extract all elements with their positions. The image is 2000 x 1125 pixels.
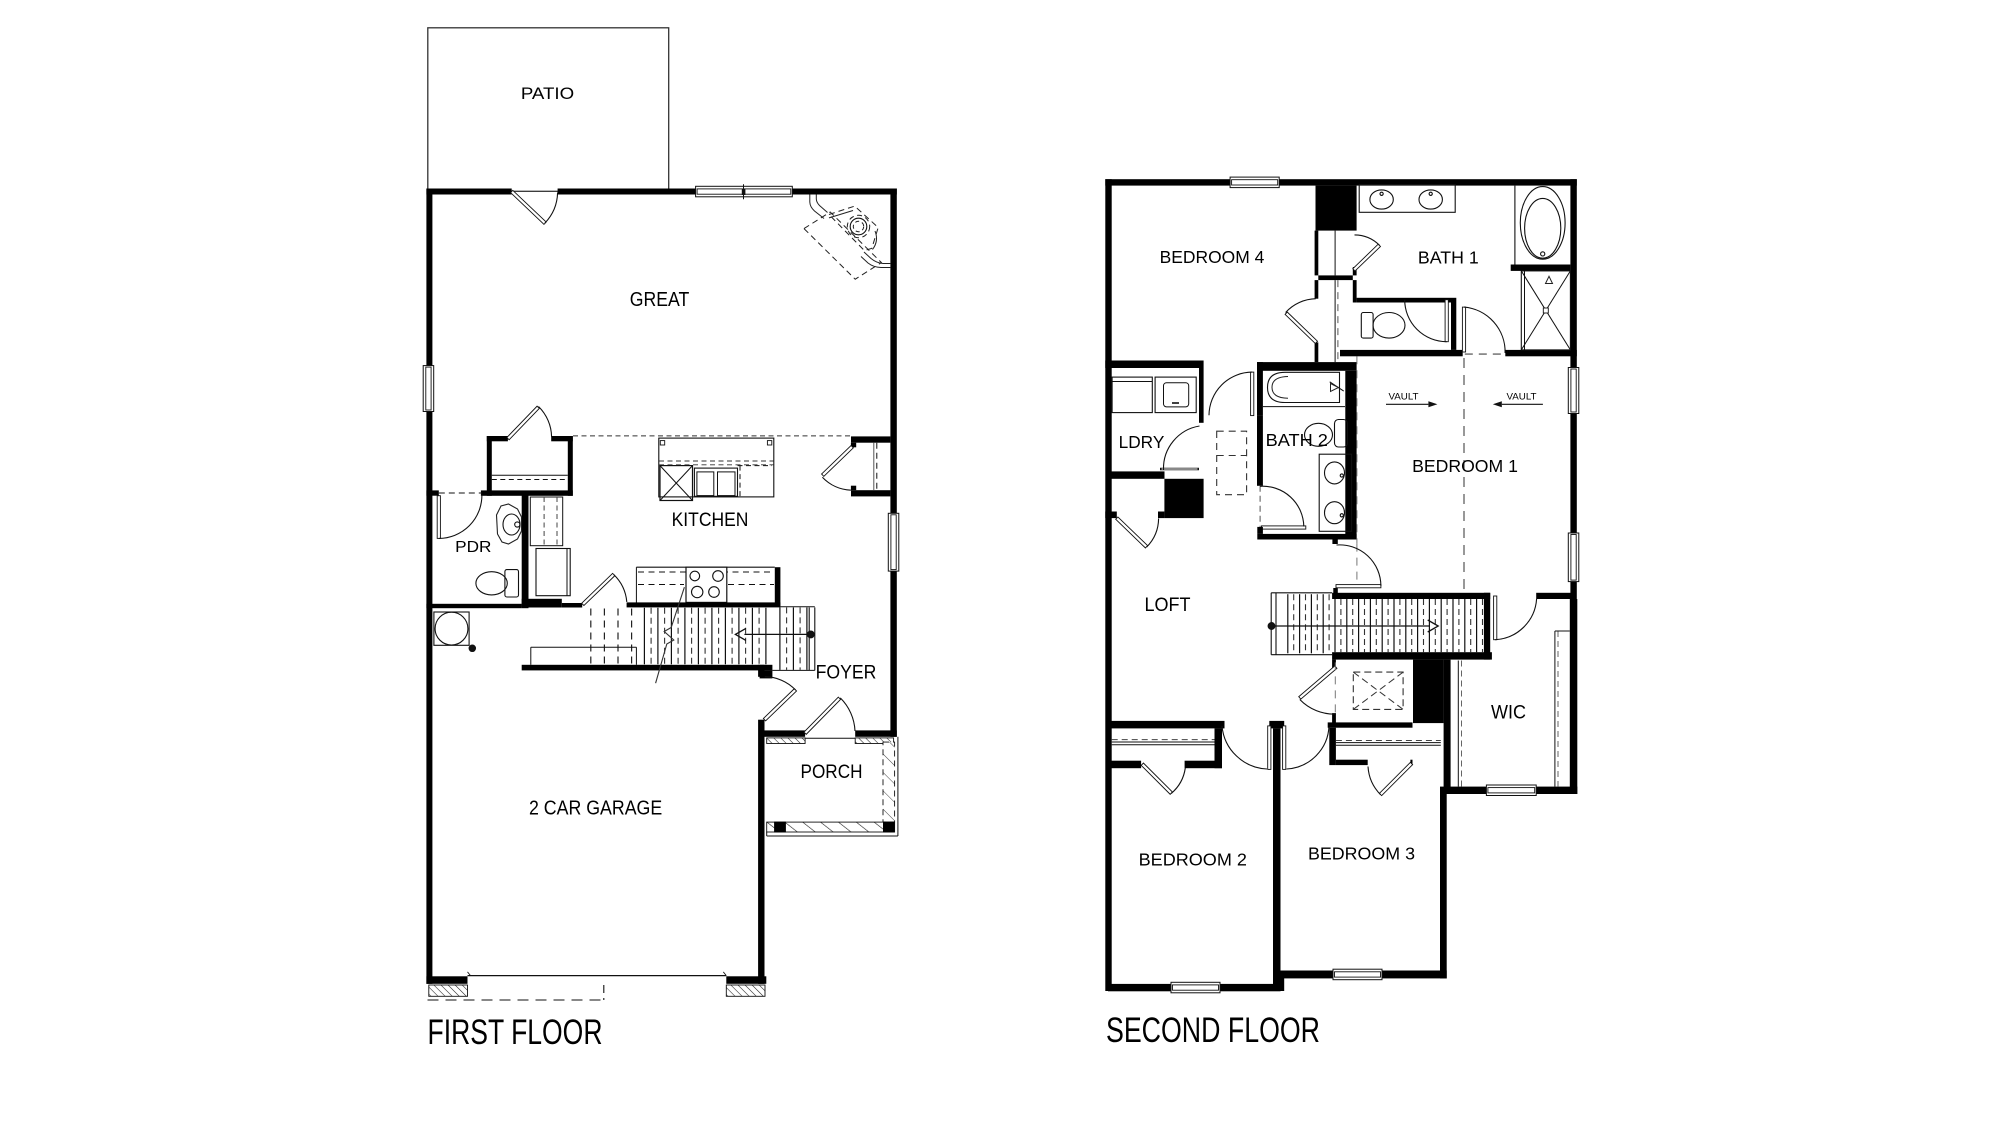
svg-text:FIRST FLOOR: FIRST FLOOR	[428, 1012, 603, 1052]
svg-text:BEDROOM 1: BEDROOM 1	[1412, 456, 1518, 476]
svg-text:FOYER: FOYER	[816, 662, 877, 684]
svg-text:2 CAR GARAGE: 2 CAR GARAGE	[529, 798, 662, 820]
svg-text:BATH 2: BATH 2	[1266, 430, 1328, 450]
svg-text:VAULT: VAULT	[1507, 392, 1537, 403]
svg-text:KITCHEN: KITCHEN	[672, 509, 749, 531]
svg-text:BEDROOM 2: BEDROOM 2	[1139, 850, 1247, 870]
svg-text:WIC: WIC	[1491, 702, 1526, 724]
svg-text:BATH 1: BATH 1	[1418, 248, 1479, 268]
svg-text:VAULT: VAULT	[1389, 392, 1419, 403]
svg-text:LOFT: LOFT	[1145, 594, 1191, 616]
svg-text:BEDROOM 4: BEDROOM 4	[1160, 247, 1265, 267]
svg-text:PDR: PDR	[455, 539, 491, 556]
svg-text:LDRY: LDRY	[1119, 432, 1165, 452]
svg-text:GREAT: GREAT	[630, 289, 690, 311]
svg-text:PORCH: PORCH	[801, 761, 863, 783]
svg-text:BEDROOM 3: BEDROOM 3	[1308, 844, 1415, 864]
svg-text:PATIO: PATIO	[521, 85, 574, 103]
svg-text:SECOND FLOOR: SECOND FLOOR	[1106, 1011, 1320, 1050]
